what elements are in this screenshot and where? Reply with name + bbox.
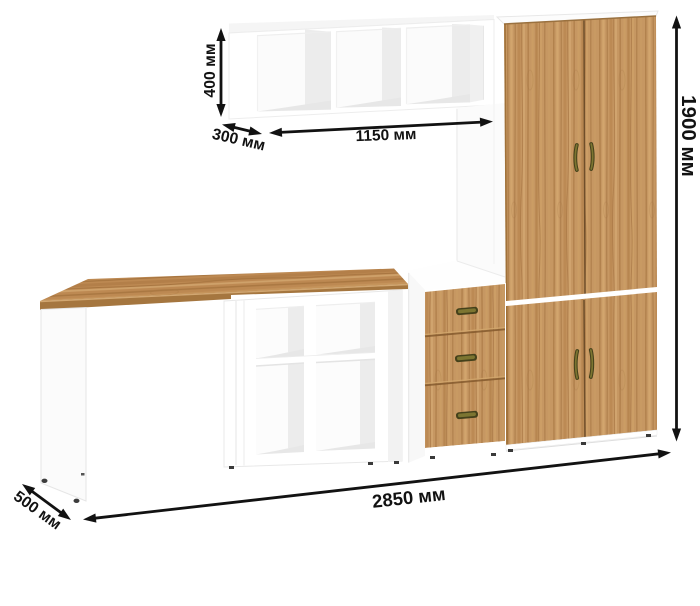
svg-text:1900 мм: 1900 мм [677,95,700,177]
svg-text:1150 мм: 1150 мм [355,126,416,145]
svg-text:400 мм: 400 мм [202,43,219,97]
